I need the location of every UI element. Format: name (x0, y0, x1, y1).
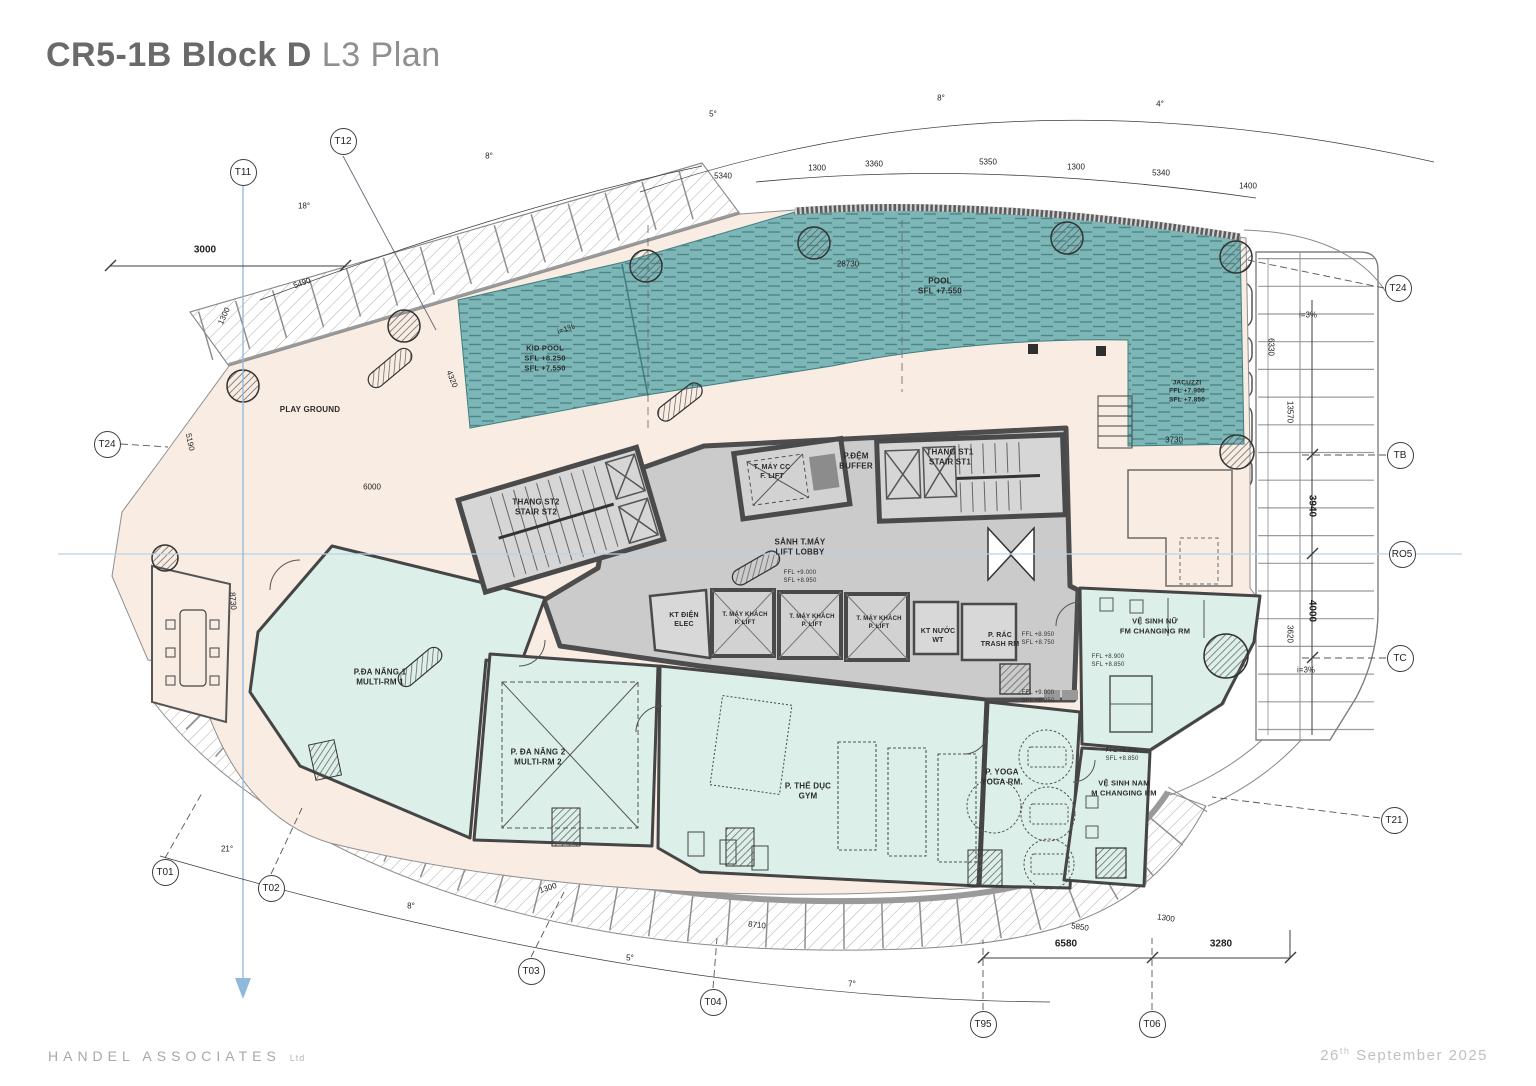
floor-plan-drawing (0, 0, 1536, 1086)
company-name: HANDEL ASSOCIATES Ltd (48, 1048, 305, 1064)
plan-date: 26th September 2025 (1320, 1046, 1488, 1064)
plan-code: CR5-1B Block D (46, 36, 312, 74)
stair-st1-block (877, 435, 1066, 521)
plan-level: L3 Plan (312, 36, 441, 74)
floor-plan-page: T12T11T24T24TBRO5TCT21T01T02T03T04T95T06… (0, 0, 1536, 1086)
page-title: CR5-1B Block D L3 Plan (46, 36, 441, 75)
fire-lift-block (734, 439, 850, 519)
company-suffix: Ltd (290, 1053, 306, 1063)
left-tip-room (152, 566, 230, 722)
gym-area (658, 666, 986, 886)
